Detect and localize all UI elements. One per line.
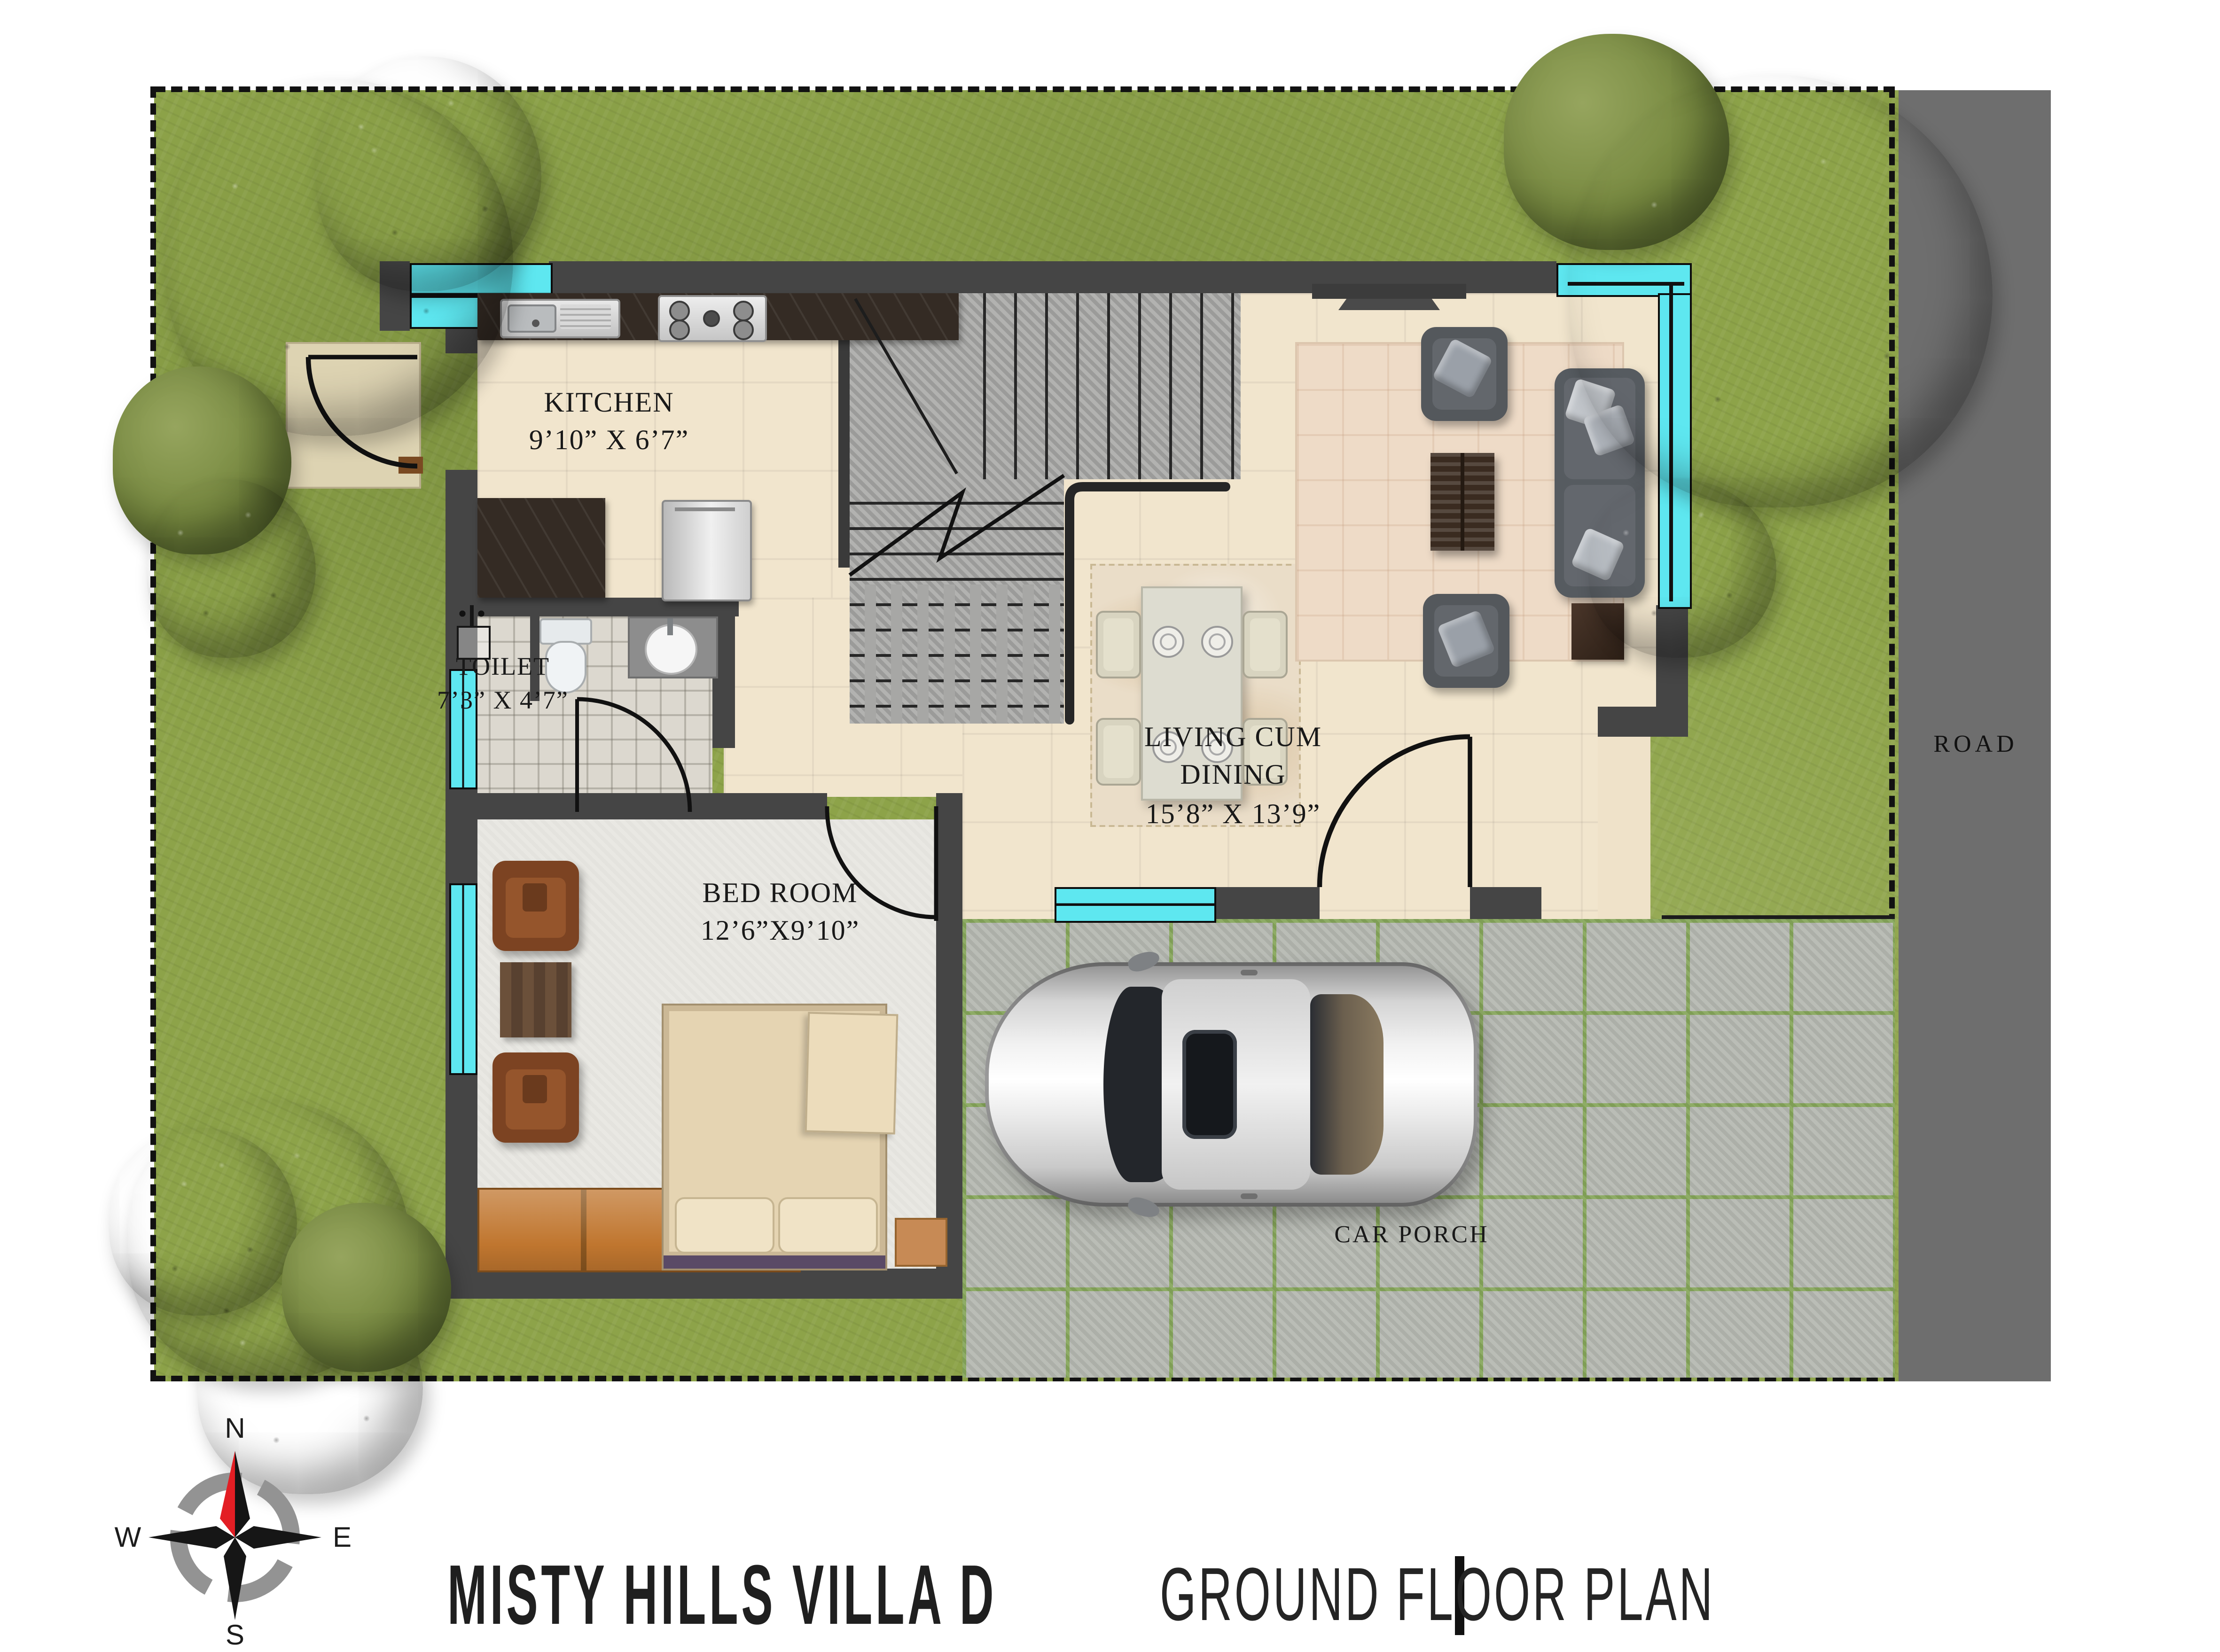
- side-walkway: [1598, 737, 1650, 919]
- living-south-window: [1055, 887, 1216, 923]
- car: [985, 962, 1477, 1207]
- tv-console: [1312, 284, 1466, 299]
- living-name-2: DINING: [1102, 758, 1365, 796]
- basin-tap-icon: [667, 618, 673, 635]
- chair-emblem: [523, 1075, 547, 1103]
- compass-west-label: W: [109, 1522, 147, 1554]
- kitchen-name: KITCHEN: [459, 385, 759, 423]
- patio-step: [399, 457, 423, 474]
- compass-east-label: E: [323, 1522, 361, 1554]
- east-needle: [235, 1526, 321, 1549]
- place-setting: [1201, 626, 1233, 658]
- page-title: MISTY HILLS VILLA D: [447, 1547, 997, 1644]
- tv-stand: [1338, 299, 1440, 310]
- living-label: LIVING CUM DINING 15’8” X 13’9”: [1102, 720, 1365, 834]
- bed-blanket: [805, 1012, 899, 1135]
- north-needle-black: [235, 1451, 250, 1537]
- dining-chair: [1096, 611, 1141, 678]
- south-needle: [224, 1537, 246, 1620]
- bedroom-window: [449, 883, 477, 1075]
- title-bar: MISTY HILLS VILLA D GROUND FLOOR PLAN: [447, 1552, 1763, 1639]
- bedside-table: [895, 1218, 947, 1267]
- wall-bedroom-south: [446, 1269, 962, 1299]
- gas-stove: [658, 295, 767, 342]
- car-door-handle: [1241, 970, 1258, 975]
- toilet-dimensions: 7’3” X 4’7”: [395, 685, 611, 719]
- road-label: ROAD: [1902, 729, 2049, 759]
- chair-cushion: [1103, 618, 1133, 671]
- living-side-table: [1571, 603, 1624, 660]
- corner-window-right: [1658, 293, 1692, 609]
- refrigerator: [662, 500, 752, 601]
- car-sunroof: [1183, 1030, 1236, 1139]
- kitchen-label: KITCHEN 9’10” X 6’7”: [459, 385, 759, 461]
- porch-edge-line: [1662, 915, 1895, 919]
- car-windshield: [1103, 987, 1173, 1182]
- north-needle-red: [220, 1451, 235, 1537]
- sink-drainboard: [560, 304, 611, 329]
- kitchen-dimensions: 9’10” X 6’7”: [459, 423, 759, 461]
- west-needle: [149, 1526, 235, 1549]
- washbasin-counter: [628, 616, 718, 678]
- armchair-bottom: [1423, 594, 1509, 688]
- compass-north-label: N: [216, 1413, 254, 1445]
- bedroom-table: [500, 962, 571, 1037]
- bedroom-label: BED ROOM 12’6”X9’10”: [620, 876, 940, 952]
- living-dimensions: 15’8” X 13’9”: [1102, 796, 1365, 834]
- stair-treads-dashed: [850, 584, 1064, 724]
- corner-window-frame-h: [1568, 282, 1684, 286]
- toilet-name: TOILET: [395, 650, 611, 685]
- kitchen-sink: [500, 299, 620, 338]
- car-porch-label: CAR PORCH: [1297, 1218, 1526, 1251]
- bedroom-armchair-1: [492, 861, 579, 951]
- armchair-top: [1421, 327, 1508, 421]
- corner-window-frame-v: [1669, 282, 1673, 601]
- living-name-1: LIVING CUM: [1102, 720, 1365, 758]
- burner-icon: [669, 301, 690, 321]
- burner-icon: [733, 301, 754, 321]
- wall-east-cap: [1598, 707, 1688, 737]
- chair-cushion: [1250, 618, 1280, 671]
- toilet-label: TOILET 7’3” X 4’7”: [395, 650, 611, 719]
- burner-icon: [669, 319, 690, 340]
- car-rear-window: [1310, 994, 1384, 1175]
- staircase-lower-flight: [850, 479, 1064, 724]
- bed-base: [664, 1255, 885, 1269]
- sink-drain-icon: [532, 319, 539, 327]
- fridge-handle: [675, 507, 735, 511]
- bed: [662, 1004, 887, 1270]
- compass-south-label: S: [216, 1620, 254, 1652]
- place-setting: [1152, 626, 1184, 658]
- car-roof: [1162, 979, 1310, 1189]
- coffee-table: [1430, 453, 1494, 551]
- wall-nw-stub: [380, 261, 410, 331]
- sink-bowl: [508, 304, 556, 333]
- wall-bedroom-north: [446, 793, 827, 819]
- shower-knobs-icon: [457, 609, 487, 618]
- coffee-table-split: [1461, 453, 1464, 551]
- kitchen-counter-south: [477, 498, 605, 598]
- bedroom-name: BED ROOM: [620, 876, 940, 914]
- burner-icon: [733, 319, 754, 340]
- plot-boundary-left: [150, 86, 156, 1381]
- plan-type-title: GROUND FLOOR PLAN: [1160, 1553, 1715, 1638]
- burner-center-icon: [703, 310, 720, 327]
- compass-rose-icon: [141, 1443, 329, 1631]
- plot-boundary-top: [154, 86, 1895, 92]
- bed-pillow: [675, 1197, 774, 1254]
- floor-plan-canvas: ROAD: [0, 0, 2220, 1648]
- stair-treads-upper: [955, 293, 1241, 479]
- dining-chair: [1243, 611, 1288, 678]
- chair-emblem: [523, 883, 547, 912]
- car-door-handle: [1241, 1193, 1258, 1199]
- bedroom-dimensions: 12’6”X9’10”: [620, 914, 940, 952]
- wall-living-south-b: [1470, 887, 1541, 919]
- bedroom-armchair-2: [492, 1052, 579, 1143]
- wall-living-south-a: [1212, 887, 1320, 919]
- sofa-three-seater: [1555, 368, 1645, 598]
- bed-pillow: [778, 1197, 878, 1254]
